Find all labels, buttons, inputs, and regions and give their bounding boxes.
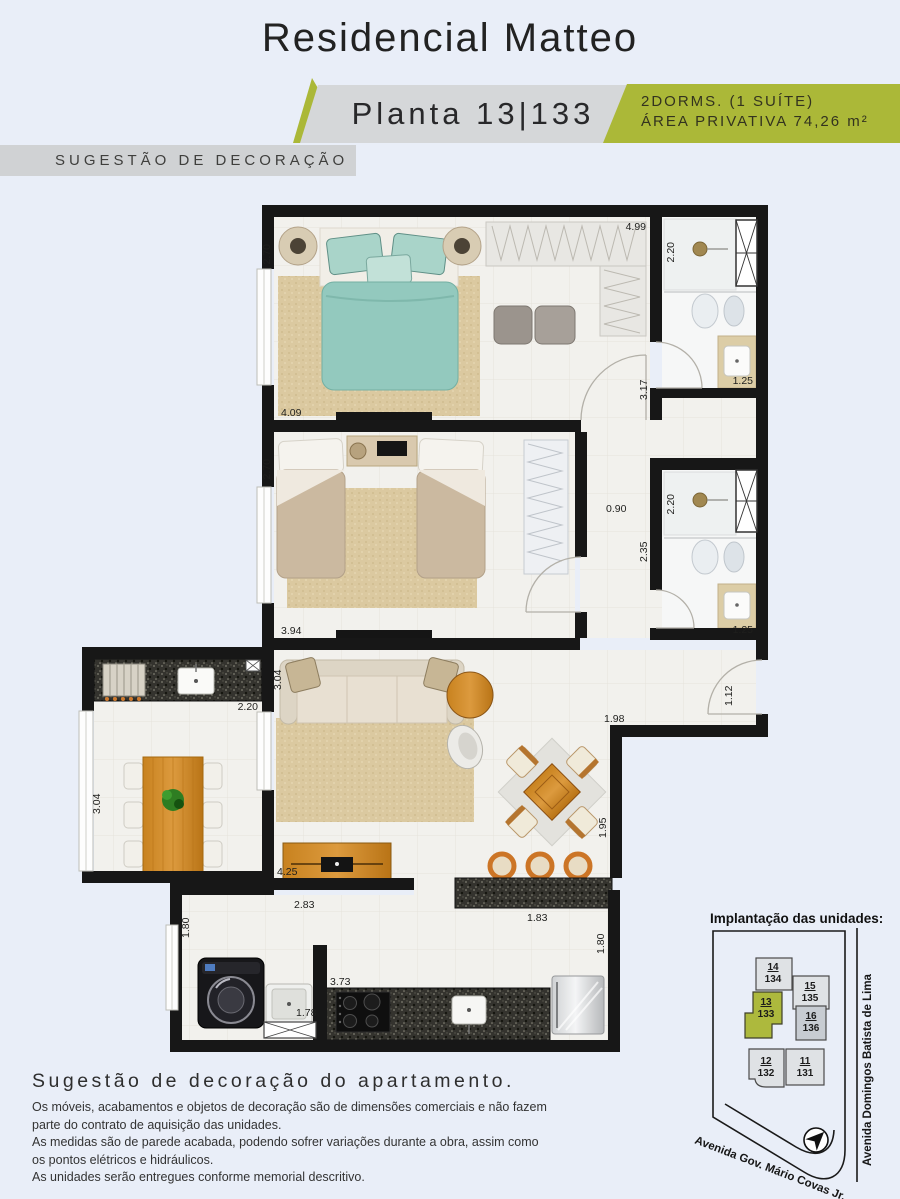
measurement-label: 0.90 (606, 503, 627, 515)
site-unit-13-highlighted: 13 133 (745, 992, 782, 1038)
suite-tv (336, 412, 432, 420)
measurement-label: 3.04 (272, 669, 284, 690)
unit-number: 12 (760, 1056, 772, 1067)
measurement-label: 2.20 (665, 494, 677, 515)
site-plan: 14 134 15 135 13 133 16 136 12 132 (693, 928, 874, 1199)
unit-number: 14 (767, 962, 779, 973)
measurement-label: 1.83 (527, 912, 548, 924)
suite-bed (320, 228, 458, 390)
dining-table-4 (498, 738, 605, 845)
measurement-label: 4.09 (281, 407, 302, 419)
apartment-number: 133 (758, 1009, 775, 1020)
grill (103, 664, 145, 701)
toilet-2 (692, 540, 718, 574)
bar-stools (490, 854, 590, 878)
bedroom2-tv (336, 630, 432, 638)
balcony-sink (178, 664, 214, 694)
footer-line: As medidas são de parede acabada, podend… (32, 1134, 552, 1152)
measurement-label: 2.20 (238, 701, 259, 713)
refrigerator (552, 976, 604, 1034)
footer-line: parte do contrato de aquisição das unida… (32, 1117, 552, 1135)
vanity-2 (718, 584, 756, 628)
bidet (724, 296, 744, 326)
single-bed-right (417, 438, 485, 578)
measurement-label: 3.17 (638, 379, 650, 400)
footer-heading: Sugestão de decoração do apartamento. (32, 1070, 552, 1093)
measurement-label: 2.70 (261, 459, 273, 480)
bidet-2 (724, 542, 744, 572)
footer-line: As unidades serão entregues conforme mem… (32, 1169, 552, 1187)
unit-number: 11 (800, 1056, 811, 1067)
measurement-label: 2.20 (665, 242, 677, 263)
footer-line: Os móveis, acabamentos e objetos de deco… (32, 1099, 552, 1117)
footer-notes: Sugestão de decoração do apartamento. Os… (32, 1070, 552, 1187)
site-unit-16: 16 136 (796, 1006, 826, 1040)
measurement-label: 1.12 (723, 685, 735, 706)
living-rug (276, 718, 474, 822)
round-side-table (447, 672, 493, 718)
balcony-dining-table (124, 757, 222, 875)
street-name-right: Avenida Domingos Batista de Lima (862, 973, 874, 1166)
measurement-label: 1.25 (733, 375, 754, 387)
unit-number: 16 (805, 1011, 817, 1022)
site-unit-14: 14 134 (756, 958, 792, 990)
measurement-label: 4.99 (626, 221, 647, 233)
measurement-label: 3.04 (91, 793, 103, 814)
siteplan-title: Implantação das unidades: (710, 911, 883, 926)
measurement-label: 2.83 (294, 899, 315, 911)
apartment-number: 135 (802, 993, 819, 1004)
bedroom2-wardrobe (524, 440, 568, 574)
measurement-label: 1.25 (733, 624, 754, 636)
measurement-label: 1.80 (180, 917, 192, 938)
apartment-number: 134 (765, 974, 782, 985)
toilet (692, 294, 718, 328)
bedroom2-console (347, 436, 417, 466)
page: Residencial Matteo Planta 13|133 2DORMS.… (0, 0, 900, 1199)
compass-icon (804, 1126, 830, 1152)
apartment-number: 132 (758, 1068, 775, 1079)
single-bed-left (277, 438, 345, 578)
shower-head-2 (693, 493, 707, 507)
washing-machine (198, 958, 264, 1028)
site-unit-15: 15 135 (793, 976, 829, 1009)
site-unit-11: 11 131 (786, 1049, 824, 1085)
measurement-label: 2.70 (261, 244, 273, 265)
bar-counter (455, 878, 612, 908)
cooktop (336, 992, 390, 1032)
measurement-label: 3.73 (330, 976, 351, 988)
measurement-label: 3.94 (281, 625, 302, 637)
footer-line: os pontos elétricos e hidráulicos. (32, 1152, 552, 1170)
measurement-label: 4.25 (277, 866, 298, 878)
measurement-label: 1.95 (597, 817, 609, 838)
measurement-label: 1.78 (296, 1007, 317, 1019)
unit-number: 13 (760, 997, 772, 1008)
site-unit-12: 12 132 (749, 1049, 784, 1087)
measurement-label: 1.80 (595, 933, 607, 954)
floor-plan: 2.70 4.99 2.20 3.17 1.25 4.09 2.70 0.90 … (0, 0, 900, 1199)
unit-number: 15 (804, 981, 816, 992)
measurement-label: 2.35 (638, 541, 650, 562)
sofa (280, 657, 464, 724)
apartment-number: 136 (803, 1023, 820, 1034)
measurement-label: 1.98 (604, 713, 625, 725)
apartment-number: 131 (797, 1068, 814, 1079)
shower-head (693, 242, 707, 256)
